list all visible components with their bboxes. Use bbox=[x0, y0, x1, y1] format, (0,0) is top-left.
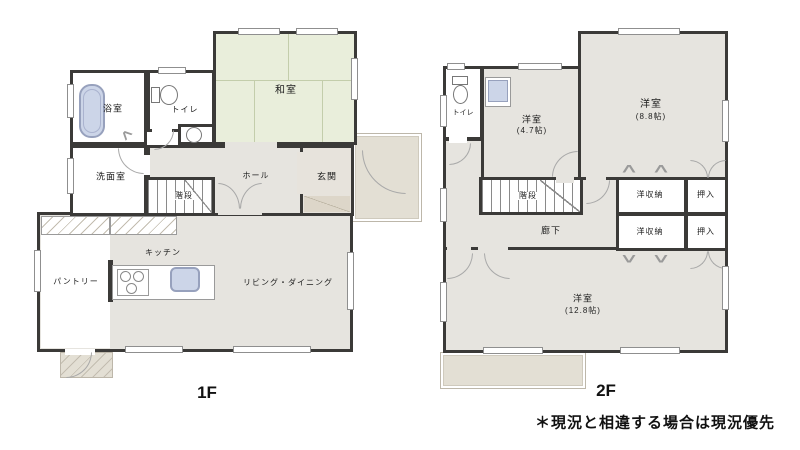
storage-divider bbox=[109, 216, 111, 235]
room-label-closet-bottom: 洋収納 bbox=[637, 228, 664, 236]
balcony bbox=[440, 352, 586, 389]
room-size-western-large: (12.8帖) bbox=[565, 307, 601, 315]
toilet-icon bbox=[453, 85, 468, 104]
bathtub-inner-icon bbox=[83, 89, 101, 133]
room-label-kitchen: キッチン bbox=[145, 249, 181, 257]
room-label-toilet-2f: トイレ bbox=[453, 110, 474, 117]
room-label-japanese: 和室 bbox=[275, 86, 297, 96]
window bbox=[125, 346, 183, 353]
floor2-label: 2F bbox=[596, 381, 616, 401]
room-label-stairs-2f: 階段 bbox=[518, 192, 538, 200]
room-label-closet-top: 洋収納 bbox=[637, 191, 664, 199]
entrance-step bbox=[304, 196, 350, 212]
opening-hall-ldk bbox=[218, 209, 262, 215]
room-label-stairs-1f: 階段 bbox=[174, 192, 194, 200]
room-size-western-medium: (8.8帖) bbox=[636, 113, 666, 121]
room-label-bath: 浴室 bbox=[103, 105, 123, 114]
room-label-entrance: 玄関 bbox=[317, 173, 337, 182]
window bbox=[67, 84, 74, 118]
room-label-washroom: 洗面室 bbox=[96, 173, 126, 182]
toilet-tank-icon bbox=[151, 87, 160, 103]
closet-folding-door-icon: ∧ bbox=[619, 162, 639, 175]
window bbox=[347, 252, 354, 310]
closet-folding-door-icon: ∨ bbox=[619, 252, 639, 265]
room-label-oshiire-bottom: 押入 bbox=[697, 228, 715, 236]
window bbox=[440, 188, 447, 222]
closet-folding-door-icon: ∧ bbox=[651, 162, 671, 175]
kitchen-sink-icon bbox=[170, 267, 200, 292]
room-label-pantry: パントリー bbox=[53, 278, 98, 286]
window bbox=[518, 63, 562, 70]
window bbox=[440, 282, 447, 322]
window bbox=[722, 100, 729, 142]
window bbox=[34, 250, 41, 292]
window bbox=[620, 347, 680, 354]
stove-burner-icon bbox=[120, 271, 131, 282]
window bbox=[618, 28, 680, 35]
stove-burner-icon bbox=[126, 283, 137, 294]
toilet-tank-icon bbox=[452, 76, 468, 85]
opening-washroom bbox=[144, 155, 150, 175]
opening-room-small bbox=[556, 177, 574, 183]
room-label-hall: ホール bbox=[243, 172, 270, 180]
room-label-corridor: 廊下 bbox=[541, 227, 561, 236]
opening-entrance-hall bbox=[297, 152, 303, 194]
wash-basin-icon bbox=[488, 80, 508, 102]
room-label-toilet-1f: トイレ bbox=[172, 106, 199, 114]
closet-folding-door-icon: ∨ bbox=[651, 252, 671, 265]
stove-burner-icon bbox=[133, 271, 144, 282]
toilet-icon bbox=[160, 85, 178, 105]
window bbox=[722, 266, 729, 310]
room-size-western-small: (4.7帖) bbox=[517, 127, 547, 135]
window bbox=[296, 28, 338, 35]
room-label-oshiire-top: 押入 bbox=[697, 191, 715, 199]
window bbox=[158, 67, 186, 74]
window bbox=[440, 95, 447, 127]
room-label-western-large: 洋室 bbox=[573, 295, 593, 304]
room-label-living-dining: リビング・ダイニング bbox=[243, 279, 333, 287]
room-pantry bbox=[41, 235, 110, 348]
window bbox=[447, 63, 465, 70]
disclaimer-note: ＊現況と相違する場合は現況優先 bbox=[535, 412, 775, 433]
window bbox=[67, 158, 74, 194]
window bbox=[483, 347, 543, 354]
room-label-western-small: 洋室 bbox=[522, 116, 542, 125]
stairs-diagonal-2f bbox=[540, 180, 580, 212]
window bbox=[238, 28, 280, 35]
hand-wash-sink-icon bbox=[186, 127, 202, 143]
floor1-label: 1F bbox=[197, 383, 217, 403]
floor-plan-image: ∧ 浴室 トイレ 洗面室 階段 ホール 玄関 和室 パントリー キッチ bbox=[0, 0, 800, 450]
window bbox=[351, 58, 358, 100]
opening-washitsu-hall bbox=[225, 142, 277, 148]
room-label-western-medium: 洋室 bbox=[640, 100, 662, 110]
window bbox=[233, 346, 311, 353]
